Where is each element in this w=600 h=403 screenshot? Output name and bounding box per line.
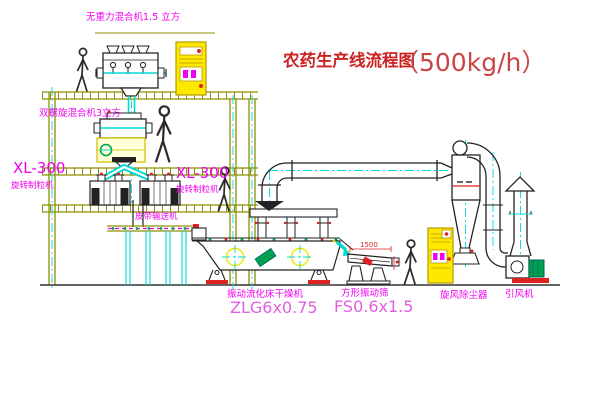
- label-cyclone: 旋风除尘器: [440, 289, 488, 301]
- person-figure: [156, 106, 171, 162]
- label-gravity-mixer: 无重力混合机1.5 立方: [86, 11, 180, 23]
- label-granulator-name-mid: 旋转制粒机: [176, 184, 219, 195]
- person-figure: [404, 240, 416, 284]
- exhaust-duct: [255, 160, 452, 211]
- control-cabinet-top: [176, 42, 206, 95]
- diagram-canvas: 无重力混合机1.5 立方 农药生产线流程图 （500kg/h） 双螺旋混合机3立…: [0, 0, 600, 403]
- induced-draft-fan: [506, 256, 549, 283]
- label-screen-model: FS0.6x1.5: [334, 297, 413, 316]
- spiral-mixer: [94, 110, 152, 177]
- label-granulator-model-left: XL-300: [13, 159, 65, 177]
- label-dryer-model: ZLG6x0.75: [230, 298, 318, 317]
- person-figure: [77, 48, 89, 91]
- label-spiral-mixer: 双螺旋混合机3立方: [39, 107, 121, 119]
- belt-conveyor: [107, 224, 199, 285]
- title-capacity: （500kg/h）: [394, 48, 546, 77]
- cad-drawing-page: 无重力混合机1.5 立方 农药生产线流程图 （500kg/h） 双螺旋混合机3立…: [0, 0, 600, 403]
- fluid-bed-dryer: [192, 209, 340, 284]
- dimension-screen-length: 1500: [360, 241, 378, 249]
- label-fan: 引风机: [505, 288, 534, 300]
- gravity-mixer: [96, 46, 166, 114]
- control-cabinet-ground: [428, 228, 453, 283]
- label-granulator-name-left: 旋转制粒机: [11, 180, 54, 191]
- label-belt-conveyor: 皮带输送机: [135, 211, 178, 222]
- label-granulator-model-mid: XL-300: [176, 164, 228, 182]
